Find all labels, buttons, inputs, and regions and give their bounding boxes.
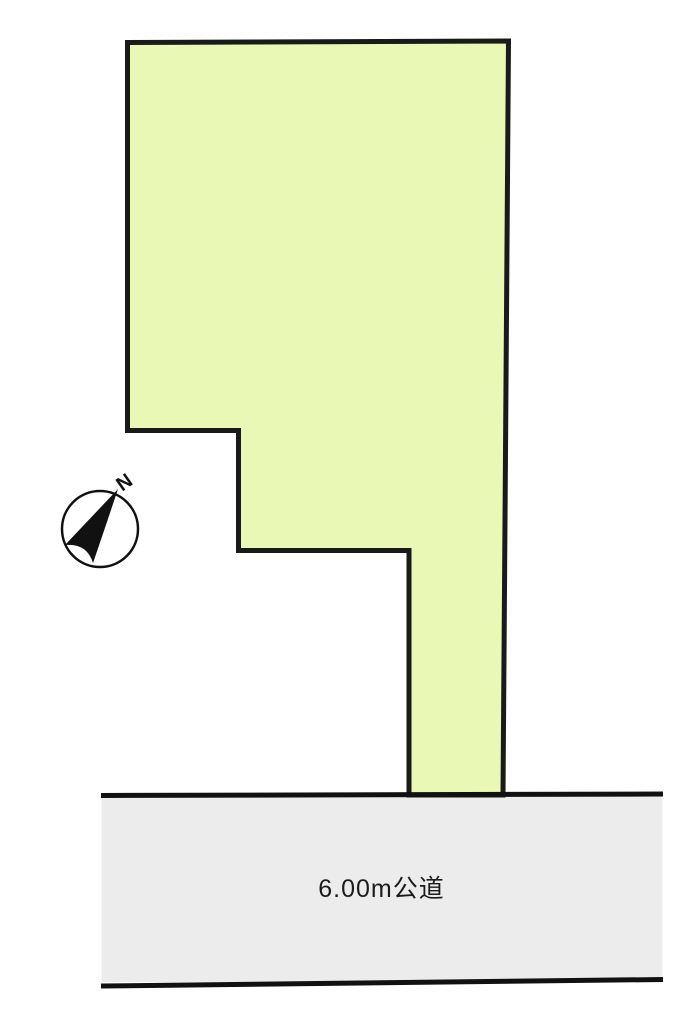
road-width-label: 6.00m公道 [101,872,662,906]
compass: N [62,470,138,567]
compass-needle-icon [65,489,118,563]
site-plan-drawing: N [0,0,693,1024]
land-parcel [128,41,509,795]
road-top-edge [101,794,663,796]
site-plan-canvas: N 6.00m公道 [0,0,693,1024]
